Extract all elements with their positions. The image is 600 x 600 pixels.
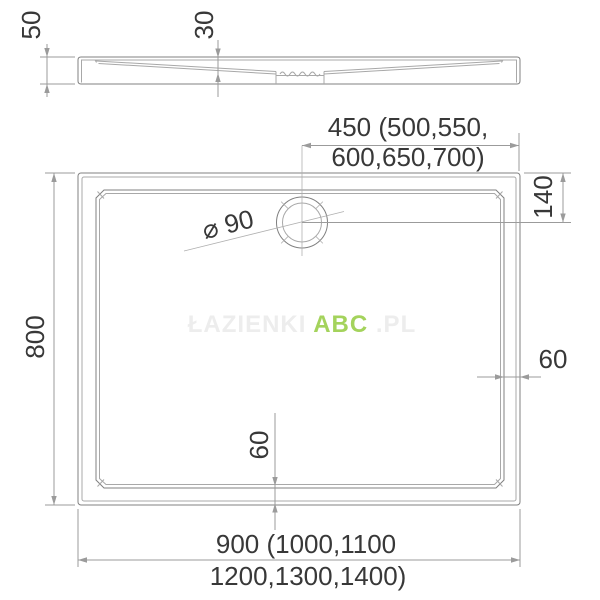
dim-label-60-bottom: 60: [244, 431, 274, 460]
watermark: ŁAZIENKI ABC .PL: [188, 311, 416, 338]
plan-view: ⌀ 90 450 (500,550, 600,650,700) 140 800: [20, 112, 571, 591]
dim-label-50: 50: [16, 11, 46, 40]
dim-label-800: 800: [20, 315, 50, 358]
dim-label-450-line1: 450 (500,550,: [328, 112, 488, 142]
shower-tray-drawing: 50 30 ⌀ 90 450 (500,5: [0, 0, 600, 600]
dim-overall-height-50: 50: [16, 11, 75, 97]
dim-drain-y-140: 140: [302, 173, 571, 223]
side-view-floor-slope-right: [324, 61, 502, 74]
basin-edge-outer: [96, 190, 504, 488]
basin-corner-miters: [98, 192, 503, 487]
dim-label-900-line1: 900 (1000,1100: [216, 529, 396, 559]
side-view: 50 30: [16, 11, 520, 97]
watermark-brand: ABC: [313, 311, 368, 338]
dim-label-60-right: 60: [539, 344, 568, 374]
tray-outer-inner-line: [82, 177, 516, 501]
watermark-prefix: ŁAZIENKI: [188, 311, 307, 338]
dim-rim-bottom-60: 60: [244, 413, 278, 530]
dim-drain-x-450: 450 (500,550, 600,650,700): [302, 112, 519, 172]
dim-label-450-line2: 600,650,700): [331, 142, 484, 172]
side-view-floor-slope-left: [96, 61, 276, 74]
dim-rim-right-60: 60: [477, 344, 567, 380]
technical-drawing-page: 50 30 ⌀ 90 450 (500,5: [0, 0, 600, 600]
dim-width-900: 900 (1000,1100 1200,1300,1400): [78, 509, 520, 591]
dim-label-30: 30: [189, 11, 219, 40]
side-view-outline: [78, 57, 520, 84]
basin-edge-inner: [100, 194, 501, 485]
watermark-suffix: .PL: [376, 311, 416, 338]
drain: ⌀ 90: [184, 146, 344, 257]
dim-height-800: 800: [20, 173, 75, 505]
drain-diameter-label: ⌀ 90: [199, 203, 257, 245]
side-view-end-cap-lines: [82, 60, 517, 83]
dim-label-900-line2: 1200,1300,1400): [210, 561, 407, 591]
dim-label-140: 140: [528, 175, 558, 218]
